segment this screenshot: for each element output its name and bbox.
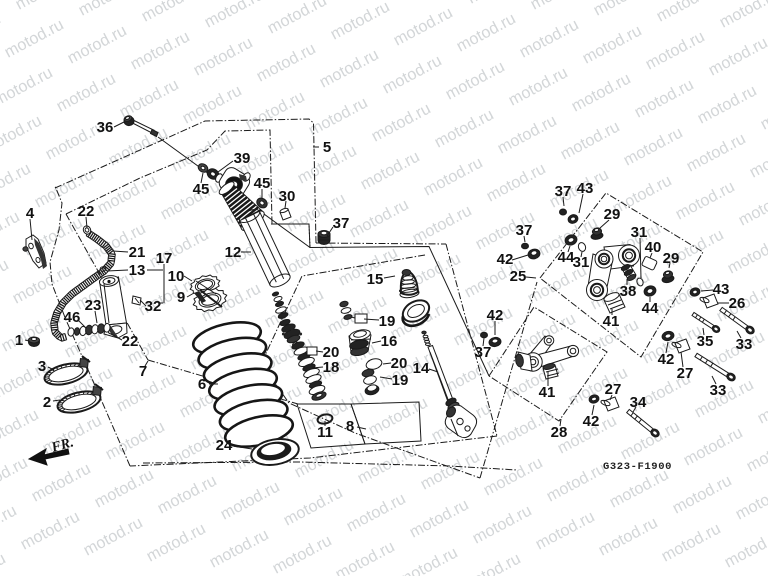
svg-text:motod.ru: motod.ru [494,111,559,157]
svg-text:motod.ru: motod.ru [253,39,318,85]
svg-text:motod.ru: motod.ru [631,75,696,121]
svg-text:motod.ru: motod.ru [0,501,20,547]
svg-text:2: 2 [43,394,51,411]
svg-text:motod.ru: motod.ru [280,483,345,529]
svg-text:motod.ru: motod.ru [0,207,23,253]
svg-text:43: 43 [713,281,730,298]
svg-text:motod.ru: motod.ru [75,0,140,20]
svg-text:23: 23 [85,297,102,314]
svg-text:29: 29 [663,250,680,267]
svg-text:35: 35 [697,333,714,350]
svg-text:13: 13 [129,262,146,279]
svg-text:motod.ru: motod.ru [620,123,685,169]
svg-text:motod.ru: motod.ru [420,153,485,199]
svg-text:18: 18 [323,359,340,376]
svg-text:motod.ru: motod.ru [206,525,271,571]
svg-text:motod.ru: motod.ru [757,87,768,133]
svg-text:6: 6 [198,376,206,393]
svg-text:motod.ru: motod.ru [80,513,145,559]
svg-text:motod.ru: motod.ru [368,99,433,145]
svg-text:motod.ru: motod.ru [343,489,408,535]
svg-text:motod.ru: motod.ru [53,69,118,115]
svg-text:motod.ru: motod.ru [458,549,523,576]
svg-text:G323-F1900: G323-F1900 [603,461,672,473]
svg-text:29: 29 [604,206,621,223]
svg-text:motod.ru: motod.ru [1,15,66,61]
svg-text:41: 41 [603,313,620,330]
svg-text:motod.ru: motod.ru [579,21,644,67]
svg-text:25: 25 [510,268,527,285]
svg-text:motod.ru: motod.ru [201,0,266,32]
svg-text:motod.ru: motod.ru [724,231,768,277]
svg-text:28: 28 [551,424,568,441]
svg-text:motod.ru: motod.ru [138,0,203,26]
svg-text:motod.ru: motod.ru [0,159,34,205]
svg-text:26: 26 [729,295,746,312]
svg-text:44: 44 [642,300,659,317]
svg-text:motod.ru: motod.ru [357,147,422,193]
svg-text:motod.ru: motod.ru [0,255,12,301]
svg-text:1: 1 [15,332,23,349]
svg-text:42: 42 [583,413,600,430]
svg-text:motod.ru: motod.ru [116,75,181,121]
svg-text:motod.ru: motod.ru [469,501,534,547]
svg-text:motod.ru: motod.ru [568,69,633,115]
svg-text:motod.ru: motod.ru [0,405,42,451]
svg-text:motod.ru: motod.ru [732,477,768,523]
svg-text:motod.ru: motod.ru [642,27,707,73]
svg-text:motod.ru: motod.ru [346,195,411,241]
svg-text:11: 11 [317,424,333,441]
svg-text:motod.ru: motod.ru [105,123,170,169]
svg-text:motod.ru: motod.ru [102,417,167,463]
svg-text:motod.ru: motod.ru [680,423,745,469]
svg-text:motod.ru: motod.ru [543,459,608,505]
svg-text:16: 16 [381,333,398,350]
svg-text:34: 34 [630,394,647,411]
svg-text:19: 19 [379,313,396,330]
svg-text:37: 37 [333,215,350,232]
svg-text:motod.ru: motod.ru [453,9,518,55]
svg-text:motod.ru: motod.ru [401,0,466,2]
svg-text:motod.ru: motod.ru [390,3,455,49]
svg-text:37: 37 [475,344,492,361]
svg-text:motod.ru: motod.ru [190,33,255,79]
svg-text:motod.ru: motod.ru [64,21,129,67]
svg-text:20: 20 [391,355,408,372]
svg-text:motod.ru: motod.ru [483,159,548,205]
svg-text:motod.ru: motod.ru [735,183,768,229]
svg-text:24: 24 [216,437,233,454]
svg-text:motod.ru: motod.ru [743,429,768,475]
svg-text:motod.ru: motod.ru [12,0,77,14]
svg-text:33: 33 [736,336,753,353]
svg-text:32: 32 [145,298,162,315]
svg-text:motod.ru: motod.ru [0,0,15,8]
svg-text:14: 14 [413,360,430,377]
svg-text:12: 12 [225,244,242,261]
svg-text:motod.ru: motod.ru [91,465,156,511]
svg-text:8: 8 [346,418,354,435]
svg-text:43: 43 [577,180,594,197]
svg-text:motod.ru: motod.ru [0,63,56,109]
svg-text:motod.ru: motod.ru [406,495,471,541]
svg-text:motod.ru: motod.ru [9,261,74,307]
svg-text:motod.ru: motod.ru [409,201,474,247]
svg-text:motod.ru: motod.ru [617,417,682,463]
svg-text:27: 27 [677,365,694,382]
svg-text:46: 46 [64,309,81,326]
svg-text:motod.ru: motod.ru [746,135,768,181]
svg-text:30: 30 [279,188,296,205]
svg-text:motod.ru: motod.ru [94,171,159,217]
svg-text:motod.ru: motod.ru [0,549,9,576]
svg-text:motod.ru: motod.ru [716,0,768,32]
svg-text:5: 5 [323,139,331,156]
svg-text:36: 36 [97,119,114,136]
svg-text:motod.ru: motod.ru [683,129,748,175]
svg-text:motod.ru: motod.ru [532,507,597,553]
svg-text:motod.ru: motod.ru [590,0,655,20]
svg-text:motod.ru: motod.ru [379,51,444,97]
svg-text:motod.ru: motod.ru [442,57,507,103]
svg-text:motod.ru: motod.ru [157,177,222,223]
svg-text:motod.ru: motod.ru [694,81,759,127]
svg-text:19: 19 [392,372,409,389]
svg-text:motod.ru: motod.ru [316,45,381,91]
svg-text:motod.ru: motod.ru [557,117,622,163]
svg-text:motod.ru: motod.ru [721,525,768,571]
svg-text:motod.ru: motod.ru [491,405,556,451]
svg-text:motod.ru: motod.ru [217,477,282,523]
svg-text:motod.ru: motod.ru [269,531,334,576]
svg-text:motod.ru: motod.ru [516,15,581,61]
svg-text:motod.ru: motod.ru [17,507,82,553]
svg-text:39: 39 [234,150,251,167]
svg-text:21: 21 [129,244,146,261]
svg-text:motod.ru: motod.ru [672,177,737,223]
svg-text:motod.ru: motod.ru [154,471,219,517]
svg-text:motod.ru: motod.ru [754,381,768,427]
svg-text:motod.ru: motod.ru [0,111,45,157]
svg-text:motod.ru: motod.ru [332,537,397,576]
svg-text:motod.ru: motod.ru [527,0,592,14]
svg-text:motod.ru: motod.ru [705,33,768,79]
svg-text:motod.ru: motod.ru [327,0,392,44]
svg-text:motod.ru: motod.ru [0,453,31,499]
svg-text:motod.ru: motod.ru [505,63,570,109]
svg-text:38: 38 [620,283,637,300]
svg-text:7: 7 [139,363,147,380]
svg-text:motod.ru: motod.ru [658,519,723,565]
svg-text:motod.ru: motod.ru [669,471,734,517]
svg-text:40: 40 [645,239,662,256]
svg-text:45: 45 [193,181,210,198]
svg-text:42: 42 [658,351,675,368]
svg-text:42: 42 [497,251,514,268]
svg-text:33: 33 [710,382,727,399]
svg-text:motod.ru: motod.ru [143,519,208,565]
svg-text:27: 27 [605,381,622,398]
svg-text:motod.ru: motod.ru [480,453,545,499]
svg-text:motod.ru: motod.ru [264,0,329,38]
svg-text:41: 41 [539,384,556,401]
svg-text:22: 22 [122,333,139,350]
svg-text:motod.ru: motod.ru [28,459,93,505]
svg-text:15: 15 [367,271,384,288]
svg-text:motod.ru: motod.ru [431,105,496,151]
svg-text:3: 3 [38,358,46,375]
svg-text:motod.ru: motod.ru [127,27,192,73]
svg-text:motod.ru: motod.ru [595,513,660,559]
svg-text:10: 10 [168,268,185,285]
svg-text:motod.ru: motod.ru [242,87,307,133]
svg-text:9: 9 [177,289,185,306]
svg-text:motod.ru: motod.ru [395,543,460,576]
svg-text:motod.ru: motod.ru [305,93,370,139]
svg-text:motod.ru: motod.ru [464,0,529,8]
svg-text:motod.ru: motod.ru [417,447,482,493]
svg-text:motod.ru: motod.ru [653,0,718,26]
